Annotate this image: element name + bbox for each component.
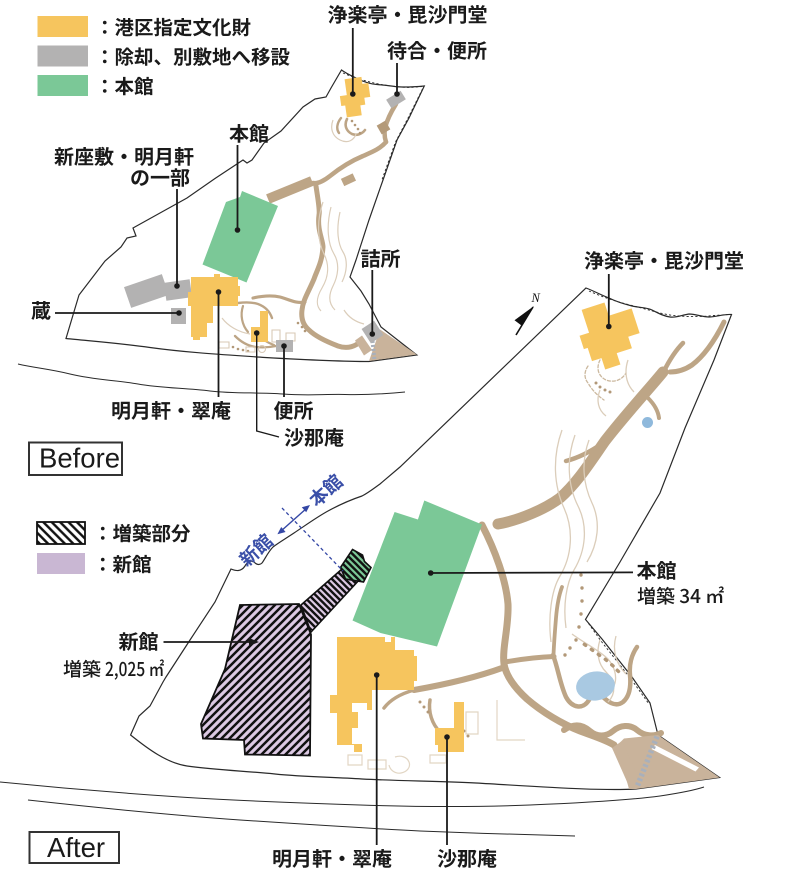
svg-text:After: After: [47, 832, 105, 863]
svg-text:N: N: [531, 291, 541, 305]
svg-text:Before: Before: [39, 443, 120, 474]
